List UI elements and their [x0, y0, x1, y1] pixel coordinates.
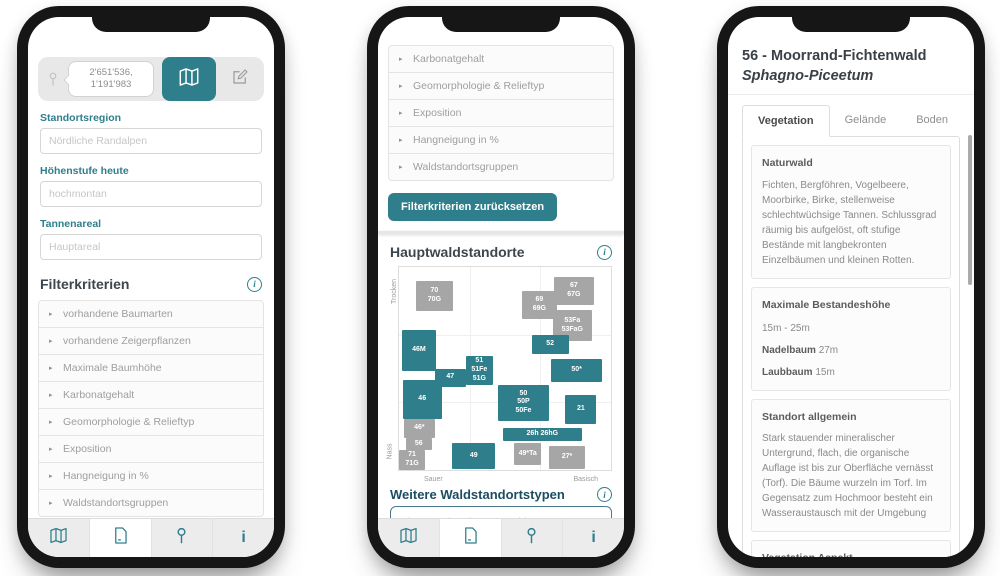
filter-accordion: ▸vorhandene Baumarten ▸vorhandene Zeiger…: [38, 300, 264, 517]
filter-header: Filterkriterien i: [40, 276, 262, 292]
chevron-right-icon: ▸: [49, 337, 53, 345]
chevron-right-icon: ▸: [49, 364, 53, 372]
chart-header: Hauptwaldstandorte i: [390, 244, 612, 260]
section-card-standort: Standort allgemein Stark stauender miner…: [751, 399, 951, 533]
document-icon: [461, 526, 480, 550]
accordion-label: Maximale Baumhöhe: [63, 362, 162, 374]
document-icon: [111, 526, 130, 550]
section-heading: Vegetation Aspekt: [762, 551, 940, 557]
info-icon[interactable]: i: [597, 245, 612, 260]
accordion-item-geomorphologie[interactable]: ▸Geomorphologie & Relieftyp: [389, 72, 613, 99]
chart-box[interactable]: 52: [532, 335, 569, 354]
edit-button[interactable]: [216, 57, 264, 101]
accordion-item-karbonatgehalt[interactable]: ▸Karbonatgehalt: [389, 46, 613, 72]
filter-title: Filterkriterien: [40, 276, 129, 292]
location-pin-icon: [522, 526, 541, 550]
nav-tab-info[interactable]: i: [212, 519, 274, 557]
field-hoehenstufe: Höhenstufe heute: [40, 165, 262, 207]
weitere-header: Weitere Waldstandortstypen i: [390, 487, 612, 502]
phone-notch: [92, 17, 210, 32]
accordion-label: Geomorphologie & Relieftyp: [63, 416, 194, 428]
chevron-right-icon: ▸: [49, 472, 53, 480]
accordion-label: vorhandene Zeigerpflanzen: [63, 335, 191, 347]
phone-mockup-chart: ▸Karbonatgehalt ▸Geomorphologie & Relief…: [367, 6, 635, 568]
y-axis-bottom-label: Nass: [386, 444, 393, 460]
field-label: Höhenstufe heute: [40, 165, 262, 177]
chevron-right-icon: ▸: [49, 391, 53, 399]
chart-box[interactable]: 46*: [404, 419, 435, 438]
reset-filters-button[interactable]: Filterkriterien zurücksetzen: [388, 193, 557, 221]
chart-box[interactable]: 46: [403, 380, 442, 419]
accordion-item-exposition[interactable]: ▸Exposition: [39, 435, 263, 462]
map-icon: [178, 66, 200, 93]
accordion-label: Waldstandortsgruppen: [63, 497, 168, 509]
chevron-right-icon: ▸: [399, 136, 403, 144]
phone-mockup-filters: 2'651'536, 1'191'983 Standortsregion Höh…: [17, 6, 285, 568]
tab-gelaende[interactable]: Gelände: [830, 105, 902, 136]
tab-panel-vegetation: Naturwald Fichten, Bergföhren, Vogelbeer…: [742, 136, 960, 557]
chart-box[interactable]: 69 69G: [522, 291, 557, 319]
accordion-item-hangneigung[interactable]: ▸Hangneigung in %: [389, 126, 613, 153]
accordion-label: Exposition: [63, 443, 111, 455]
coordinate-north: 1'191'983: [91, 79, 132, 91]
section-heading: Naturwald: [762, 156, 940, 172]
info-icon: i: [591, 530, 595, 546]
accordion-label: Hangneigung in %: [63, 470, 149, 482]
divider: [728, 94, 974, 95]
chevron-right-icon: ▸: [399, 55, 403, 63]
coordinates-display[interactable]: 2'651'536, 1'191'983: [68, 61, 154, 97]
x-axis-left-label: Sauer: [424, 476, 443, 483]
nav-tab-document[interactable]: [439, 519, 501, 557]
chart-box[interactable]: 27*: [549, 446, 585, 469]
chart-box[interactable]: 26h 26hG: [503, 428, 582, 441]
chart-box[interactable]: 51 51Fe 51G: [466, 356, 493, 385]
field-label: Tannenareal: [40, 218, 262, 230]
chart-box[interactable]: 21: [565, 395, 596, 424]
section-divider: [378, 231, 624, 234]
tab-vegetation[interactable]: Vegetation: [742, 105, 830, 137]
field-label: Standortsregion: [40, 112, 262, 124]
detail-subtitle: Sphagno-Piceetum: [742, 67, 960, 87]
chart-box[interactable]: 70 70G: [416, 281, 454, 312]
accordion-item-baumhoehe[interactable]: ▸Maximale Baumhöhe: [39, 354, 263, 381]
nav-tab-info[interactable]: i: [562, 519, 624, 557]
site-types-chart: Trocken Nass 70 70G67 67G69 69G53Fa 53Fa…: [398, 266, 612, 471]
accordion-item-hangneigung[interactable]: ▸Hangneigung in %: [39, 462, 263, 489]
screen-detail: 56 - Moorrand-Fichtenwald Sphagno-Piceet…: [728, 17, 974, 557]
nav-tab-location[interactable]: [151, 519, 213, 557]
tannenareal-input[interactable]: [40, 234, 262, 260]
chart-box[interactable]: 71 71G: [399, 450, 425, 470]
phone-notch: [792, 17, 910, 32]
accordion-label: Exposition: [413, 107, 461, 119]
nav-tab-document[interactable]: [89, 519, 151, 557]
nadelbaum-height: Nadelbaum 27m: [762, 343, 940, 358]
chart-box[interactable]: 50*: [551, 359, 602, 382]
height-range: 15m - 25m: [762, 321, 940, 336]
edit-icon: [231, 68, 249, 91]
info-icon: i: [241, 530, 245, 546]
detail-tabs: Vegetation Gelände Boden: [742, 105, 960, 136]
accordion-item-waldstandortsgruppen[interactable]: ▸Waldstandortsgruppen: [39, 489, 263, 516]
nav-tab-map[interactable]: [28, 519, 89, 557]
field-standortsregion: Standortsregion: [40, 112, 262, 154]
section-heading: Maximale Bestandeshöhe: [762, 298, 940, 314]
accordion-item-exposition[interactable]: ▸Exposition: [389, 99, 613, 126]
phone-notch: [442, 17, 560, 32]
accordion-label: Hangneigung in %: [413, 134, 499, 146]
map-icon: [399, 526, 418, 550]
info-icon[interactable]: i: [597, 487, 612, 502]
section-card-vegetation-aspekt: Vegetation Aspekt Moosreich, mit Torfmoo…: [751, 540, 951, 557]
map-icon: [49, 526, 68, 550]
chevron-right-icon: ▸: [49, 499, 53, 507]
laubbaum-height: Laubbaum 15m: [762, 365, 940, 380]
scrollbar[interactable]: [968, 135, 972, 285]
weitere-title: Weitere Waldstandortstypen: [390, 487, 565, 502]
accordion-item-waldstandortsgruppen[interactable]: ▸Waldstandortsgruppen: [389, 153, 613, 180]
chart-box[interactable]: 49: [452, 443, 495, 469]
location-toolbar: 2'651'536, 1'191'983: [38, 57, 264, 101]
screen-chart: ▸Karbonatgehalt ▸Geomorphologie & Relief…: [378, 17, 624, 557]
chart-box[interactable]: 67 67G: [554, 277, 594, 305]
chart-box[interactable]: 49*Ta: [514, 443, 541, 465]
hoehenstufe-input[interactable]: [40, 181, 262, 207]
accordion-label: Karbonatgehalt: [413, 53, 484, 65]
section-card-bestandeshoehe: Maximale Bestandeshöhe 15m - 25m Nadelba…: [751, 287, 951, 391]
chevron-right-icon: ▸: [399, 163, 403, 171]
chevron-right-icon: ▸: [399, 109, 403, 117]
chevron-right-icon: ▸: [49, 445, 53, 453]
section-heading: Standort allgemein: [762, 410, 940, 426]
chart-box[interactable]: 46M: [402, 330, 436, 371]
accordion-item-karbonatgehalt[interactable]: ▸Karbonatgehalt: [39, 381, 263, 408]
accordion-label: Waldstandortsgruppen: [413, 161, 518, 173]
coordinate-east: 2'651'536,: [89, 67, 132, 79]
chevron-right-icon: ▸: [49, 418, 53, 426]
nav-tab-location[interactable]: [501, 519, 563, 557]
tab-boden[interactable]: Boden: [901, 105, 963, 136]
accordion-item-zeigerpflanzen[interactable]: ▸vorhandene Zeigerpflanzen: [39, 327, 263, 354]
chart-title: Hauptwaldstandorte: [390, 244, 525, 260]
bottom-navigation: i: [28, 518, 274, 557]
map-button[interactable]: [162, 57, 216, 101]
x-axis-right-label: Basisch: [573, 476, 598, 483]
section-text: Stark stauender mineralischer Untergrund…: [762, 431, 940, 521]
accordion-item-geomorphologie[interactable]: ▸Geomorphologie & Relieftyp: [39, 408, 263, 435]
chart-plot: 70 70G67 67G69 69G53Fa 53FaG46M5251 51Fe…: [398, 266, 612, 471]
location-pin-icon: [172, 526, 191, 550]
section-card-naturwald: Naturwald Fichten, Bergföhren, Vogelbeer…: [751, 145, 951, 279]
detail-title-block: 56 - Moorrand-Fichtenwald Sphagno-Piceet…: [742, 47, 960, 86]
accordion-label: Geomorphologie & Relieftyp: [413, 80, 544, 92]
chevron-right-icon: ▸: [49, 310, 53, 318]
info-icon[interactable]: i: [247, 277, 262, 292]
field-tannenareal: Tannenareal: [40, 218, 262, 260]
accordion-item-baumarten[interactable]: ▸vorhandene Baumarten: [39, 301, 263, 327]
filter-accordion: ▸Karbonatgehalt ▸Geomorphologie & Relief…: [388, 45, 614, 181]
y-axis-top-label: Trocken: [391, 279, 398, 304]
detail-title: 56 - Moorrand-Fichtenwald: [742, 47, 960, 67]
standortsregion-input[interactable]: [40, 128, 262, 154]
accordion-label: Karbonatgehalt: [63, 389, 134, 401]
chevron-right-icon: ▸: [399, 82, 403, 90]
section-text: Fichten, Bergföhren, Vogelbeere, Moorbir…: [762, 178, 940, 268]
accordion-label: vorhandene Baumarten: [63, 308, 173, 320]
phone-mockup-detail: 56 - Moorrand-Fichtenwald Sphagno-Piceet…: [717, 6, 985, 568]
bottom-navigation: i: [378, 518, 624, 557]
screen-filters: 2'651'536, 1'191'983 Standortsregion Höh…: [28, 17, 274, 557]
nav-tab-map[interactable]: [378, 519, 439, 557]
chart-box[interactable]: 50 50P 50Fe: [498, 385, 549, 421]
chart-box[interactable]: 56: [406, 438, 432, 450]
